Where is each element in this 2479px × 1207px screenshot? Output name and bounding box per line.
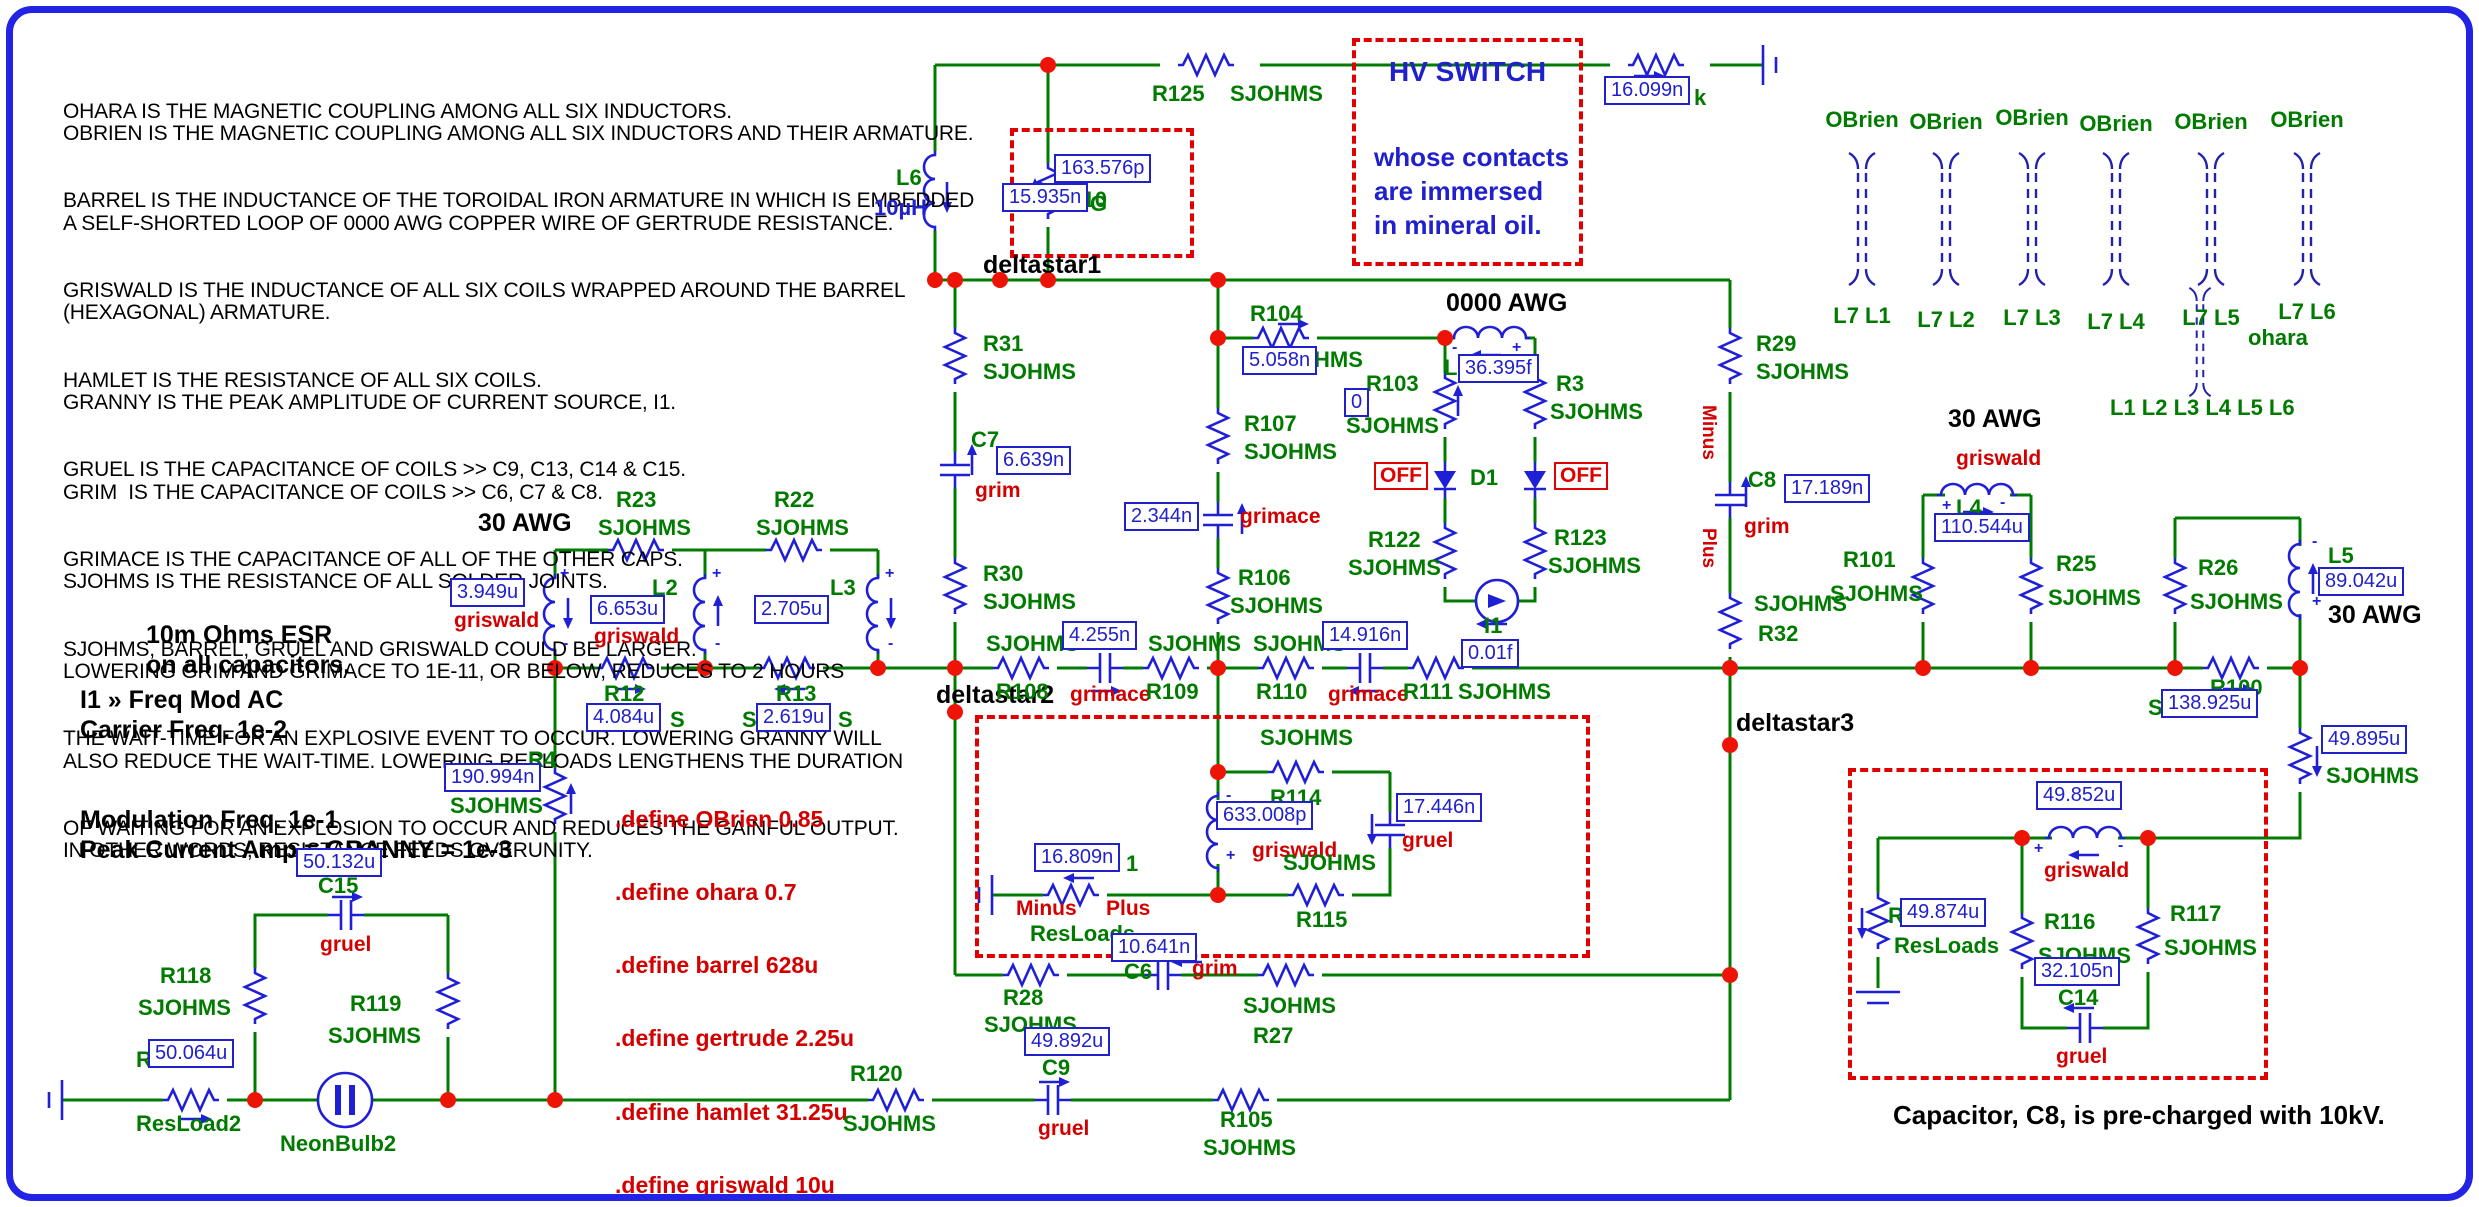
label-r103-value: SJOHMS — [1346, 414, 1439, 437]
label-obrien-1: OBrien — [1817, 108, 1907, 131]
label-r114-value: SJOHMS — [1260, 726, 1353, 749]
label-r123: R123 — [1554, 526, 1607, 549]
label-c9-gruel: gruel — [1038, 1118, 1089, 1140]
label-c14-gruel: gruel — [2056, 1046, 2107, 1068]
label-obrien-3: OBrien — [1987, 106, 2077, 129]
label-r23: R23 — [616, 488, 656, 511]
label-l4-griswald: griswald — [1956, 448, 2041, 470]
label-r29-value: SJOHMS — [1756, 360, 1849, 383]
label-r120-value: SJOHMS — [843, 1112, 936, 1135]
label-ds3-griswald: griswald — [2044, 860, 2129, 882]
label-r115-value: SJOHMS — [1283, 851, 1376, 874]
resistor-ResLoad2 — [163, 1090, 219, 1110]
label-l2-griswald: griswald — [594, 626, 679, 648]
resistor-R109 — [1143, 658, 1199, 678]
l2-plus: + — [712, 566, 721, 583]
label-c9: C9 — [1042, 1056, 1070, 1079]
resistor-R28 — [1003, 965, 1059, 985]
label-r106: R106 — [1238, 566, 1291, 589]
resistor-R27 — [1258, 965, 1314, 985]
hv-switch-line: in mineral oil. — [1374, 210, 1542, 241]
label-r104: R104 — [1250, 302, 1303, 325]
l5-minus: - — [2312, 534, 2317, 551]
value-box-c6: 10.641n — [1111, 933, 1197, 962]
l2-minus: - — [715, 636, 720, 653]
label-obrien-4: OBrien — [2071, 112, 2161, 135]
resistor-R106 — [1208, 568, 1228, 624]
node-deltastar3: deltastar3 — [1736, 710, 1854, 736]
value-box-r100: 138.925u — [2161, 689, 2258, 718]
coupling-symbols[interactable] — [1849, 153, 2320, 396]
resistor-R125 — [1178, 55, 1234, 75]
l5-plus: + — [2312, 594, 2321, 611]
label-loop-inductor: L — [1444, 356, 1457, 379]
label-r12: R12 — [604, 682, 644, 705]
label-r32: R32 — [1758, 622, 1798, 645]
coupling-OBrien-3-icon — [2019, 153, 2045, 285]
label-r106-value: SJOHMS — [1230, 594, 1323, 617]
label-r111-value: SJOHMS — [1458, 680, 1551, 703]
label-r122-value: SJOHMS — [1348, 556, 1441, 579]
label-l1l6: L1 L2 L3 L4 L5 L6 — [2110, 396, 2295, 419]
value-box-hv-res: 16.099n — [1604, 76, 1690, 105]
label-r118-value: SJOHMS — [138, 996, 231, 1019]
value-box-l1: 3.949u — [450, 578, 525, 607]
label-l3: L3 — [830, 576, 856, 599]
label-l5: L5 — [2328, 544, 2354, 567]
label-r119: R119 — [350, 992, 401, 1015]
value-box-l6: 15.935n — [1002, 183, 1088, 212]
resistor-R107 — [1208, 408, 1228, 464]
value-box-loop-inductor: 36.395f — [1458, 354, 1539, 383]
label-r120: R120 — [850, 1062, 903, 1085]
label-r26: R26 — [2198, 556, 2238, 579]
label-r12-tail: S — [670, 708, 685, 731]
label-r107: R107 — [1244, 412, 1297, 435]
label-r27: R27 — [1253, 1024, 1293, 1047]
l4-minus: - — [2000, 495, 2005, 512]
value-box-sjohms-right: 49.895u — [2321, 725, 2407, 754]
l3-minus: - — [888, 636, 893, 653]
label-c8-plus: Plus — [1698, 528, 1718, 568]
capacitor-C8 — [1715, 482, 1745, 518]
resistor-R32 — [1720, 593, 1740, 649]
label-l7l1: L7 L1 — [1827, 304, 1897, 327]
label-r22-value: SJOHMS — [756, 516, 849, 539]
label-r31: R31 — [983, 332, 1023, 355]
label-resload1-tail: 1 — [1126, 852, 1138, 875]
label-r105-value: SJOHMS — [1203, 1136, 1296, 1159]
value-box-r104: 5.058n — [1242, 346, 1317, 375]
l1-plus: + — [560, 566, 569, 583]
label-c6: C6 — [1124, 960, 1152, 983]
label-obrien-2: OBrien — [1901, 110, 1991, 133]
label-r117: R117 — [2170, 902, 2221, 925]
terminal-left-icon — [49, 1080, 62, 1120]
coupling-OBrien-1-icon — [1849, 153, 1875, 285]
value-box-c15: 50.132u — [296, 848, 382, 877]
spice-defines: .define OBrien 0.85 .define ohara 0.7 .d… — [615, 758, 874, 1207]
value-box-l2: 6.653u — [590, 595, 665, 624]
label-sjohms-right: SJOHMS — [2326, 764, 2419, 787]
label-r30-value: SJOHMS — [983, 590, 1076, 613]
label-r115: R115 — [1296, 908, 1347, 931]
resistor-R120 — [868, 1090, 924, 1110]
resistor-R111 — [1408, 658, 1464, 678]
label-r110: R110 — [1256, 680, 1307, 703]
ds2-coil-plus: + — [1226, 848, 1235, 865]
resistor-R25 — [2021, 558, 2041, 614]
node-deltastar1: deltastar1 — [983, 252, 1101, 278]
capacitor-row-left — [1087, 653, 1123, 683]
value-box-r4: 190.994n — [444, 763, 541, 792]
label-r119-value: SJOHMS — [328, 1024, 421, 1047]
c8-precharge-note: Capacitor, C8, is pre-charged with 10kV. — [1893, 1102, 2385, 1129]
label-r108: R108 — [996, 680, 1049, 703]
label-c15-gruel: gruel — [320, 934, 371, 956]
label-r117-value: SJOHMS — [2164, 936, 2257, 959]
label-r27-value: SJOHMS — [1243, 994, 1336, 1017]
diode-D1 — [1434, 462, 1456, 498]
label-r3-value: SJOHMS — [1550, 400, 1643, 423]
resistor-R108 — [993, 658, 1049, 678]
label-l7l5: L7 L5 — [2176, 306, 2246, 329]
label-c15: C15 — [318, 874, 358, 897]
label-d1: D1 — [1470, 466, 1498, 489]
label-l6: L6 — [896, 166, 922, 189]
hv-switch-title: HV SWITCH — [1356, 56, 1579, 88]
value-box-ds2-gruel: 17.446n — [1396, 793, 1482, 822]
label-r116: R116 — [2044, 910, 2095, 933]
value-box-c9: 49.892u — [1024, 1027, 1110, 1056]
label-l7l4: L7 L4 — [2081, 310, 2151, 333]
label-grimace-row-left: grimace — [1070, 684, 1151, 706]
value-box-r114: 633.008p — [1216, 801, 1313, 830]
diode-D2 — [1524, 462, 1546, 498]
value-box-resload1: 16.809n — [1034, 843, 1120, 872]
resistor-R29 — [1720, 328, 1740, 384]
coupling-OBrien-4-icon — [2103, 153, 2129, 285]
label-c8-minus: Minus — [1698, 405, 1718, 460]
resistor-R123 — [1525, 523, 1545, 579]
label-r25-value: SJOHMS — [2048, 586, 2141, 609]
value-box-c14: 32.105n — [2034, 957, 2120, 986]
resistor-R119 — [438, 973, 458, 1029]
label-l7l3: L7 L3 — [1997, 306, 2067, 329]
label-r26-value: SJOHMS — [2190, 590, 2283, 613]
label-c14: C14 — [2058, 986, 2098, 1009]
label-r29: R29 — [1756, 332, 1796, 355]
label-ohara: ohara — [2248, 326, 2308, 349]
label-ds2-gruel: gruel — [1402, 830, 1453, 852]
label-r125: R125 — [1152, 82, 1205, 105]
label-r118: R118 — [160, 964, 211, 987]
label-r122: R122 — [1368, 528, 1421, 551]
schematic-canvas: HV SWITCH whose contacts are immersed in… — [0, 0, 2479, 1207]
label-r101-value: SJOHMS — [1830, 582, 1923, 605]
label-r13-head: S — [742, 708, 757, 731]
label-30awg-mid: 30 AWG — [1948, 406, 2042, 432]
value-box-l4: 110.544u — [1934, 513, 2030, 542]
neon-bulb-icon — [318, 1073, 372, 1127]
label-r101: R101 — [1843, 548, 1896, 571]
label-c6-grim: grim — [1192, 958, 1238, 980]
ds3-minus: - — [2118, 838, 2123, 855]
label-r13: R13 — [776, 682, 816, 705]
label-l7l6: L7 L6 — [2272, 300, 2342, 323]
hv-switch-box: HV SWITCH whose contacts are immersed in… — [1352, 38, 1583, 266]
label-resload2: ResLoad2 — [136, 1112, 241, 1135]
label-l7l2: L7 L2 — [1911, 308, 1981, 331]
value-box-row-cap-right: 14.916n — [1322, 621, 1408, 650]
status-off-d2: OFF — [1554, 462, 1608, 490]
label-c7-grim: grim — [975, 480, 1021, 502]
label-grimace-row-right: grimace — [1328, 684, 1409, 706]
label-r30: R30 — [983, 562, 1023, 585]
label-r31-value: SJOHMS — [983, 360, 1076, 383]
label-r107-value: SJOHMS — [1244, 440, 1337, 463]
label-neonbulb2: NeonBulb2 — [280, 1132, 396, 1155]
capacitor-grimace-mid — [1203, 502, 1233, 538]
resistor-R110 — [1258, 658, 1314, 678]
label-obrien-6: OBrien — [2262, 108, 2352, 131]
coupling-OBrien-5-icon — [2198, 153, 2224, 285]
label-r4-value: SJOHMS — [450, 794, 543, 817]
label-0000awg: 0000 AWG — [1446, 290, 1567, 316]
terminal-top-right-icon — [1763, 45, 1776, 85]
value-box-r103: 0 — [1344, 388, 1369, 417]
label-r22: R22 — [774, 488, 814, 511]
label-r111: R111 — [1403, 680, 1453, 703]
resistor-R26 — [2165, 558, 2185, 614]
label-r105: R105 — [1220, 1108, 1273, 1131]
label-i1: I1 — [1484, 614, 1502, 637]
inductor-L4 — [1937, 484, 2017, 495]
value-box-resload2: 50.064u — [148, 1039, 234, 1068]
coupling-OBrien-6-icon — [2294, 153, 2320, 285]
capacitor-C9 — [1035, 1085, 1071, 1115]
label-obrien-5: OBrien — [2166, 110, 2256, 133]
label-c8: C8 — [1748, 468, 1776, 491]
label-resloads-minus: Minus — [1016, 898, 1077, 920]
capacitor-C15 — [328, 900, 364, 930]
label-r3: R3 — [1556, 372, 1584, 395]
value-box-l3: 2.705u — [754, 595, 829, 624]
label-r28: R28 — [1003, 986, 1043, 1009]
label-r123-value: SJOHMS — [1548, 554, 1641, 577]
value-box-r12: 4.084u — [586, 703, 661, 732]
value-box-resload3: 49.874u — [1900, 898, 1986, 927]
inductor-0000awg — [1450, 327, 1530, 338]
label-r109: R109 — [1146, 680, 1199, 703]
label-resloads-plus: Plus — [1106, 898, 1150, 920]
value-box-r13: 2.619u — [756, 703, 831, 732]
hv-switch-line: whose contacts — [1374, 142, 1569, 173]
value-box-i1: 0.01f — [1461, 639, 1519, 668]
label-hv-res-tail: k — [1694, 86, 1706, 109]
label-l1-griswald: griswald — [454, 610, 539, 632]
label-grimace-mid: grimace — [1240, 506, 1321, 528]
ds3-plus: + — [2034, 841, 2043, 858]
label-r109-value: SJOHMS — [1148, 632, 1241, 655]
label-r25: R25 — [2056, 552, 2096, 575]
hv-switch-line: are immersed — [1374, 176, 1543, 207]
value-box-1e10-cap: 163.576p — [1054, 154, 1151, 183]
value-box-ds3-coil: 49.852u — [2036, 781, 2122, 810]
label-r13-tail: S — [838, 708, 853, 731]
label-r103: R103 — [1366, 372, 1419, 395]
label-c8-grim: grim — [1744, 516, 1790, 538]
value-box-c8: 17.189n — [1784, 474, 1870, 503]
status-off-d1: OFF — [1374, 462, 1428, 490]
label-r23-value: SJOHMS — [598, 516, 691, 539]
inductor-L5 — [2289, 540, 2300, 620]
label-r125-value: SJOHMS — [1230, 82, 1323, 105]
coupling-OBrien-2-icon — [1933, 153, 1959, 285]
label-c7: C7 — [971, 428, 999, 451]
value-box-l5: 89.042u — [2318, 567, 2404, 596]
label-l6-value: 10µH — [874, 196, 927, 219]
value-box-grimace-mid: 2.344n — [1124, 502, 1199, 531]
label-30awg-right: 30 AWG — [2328, 602, 2422, 628]
label-30awg-left: 30 AWG — [478, 510, 572, 536]
capacitor-row-right — [1347, 653, 1383, 683]
label-resloads-ds3: ResLoads — [1894, 934, 1999, 957]
resistor-R104 — [1253, 328, 1309, 348]
l3-plus: + — [885, 566, 894, 583]
resistor-sjohms-right — [2290, 728, 2310, 784]
value-box-row-cap-left: 4.255n — [1062, 621, 1137, 650]
l1-minus: - — [563, 636, 568, 653]
resistor-R118 — [245, 968, 265, 1024]
value-box-c7: 6.639n — [996, 446, 1071, 475]
